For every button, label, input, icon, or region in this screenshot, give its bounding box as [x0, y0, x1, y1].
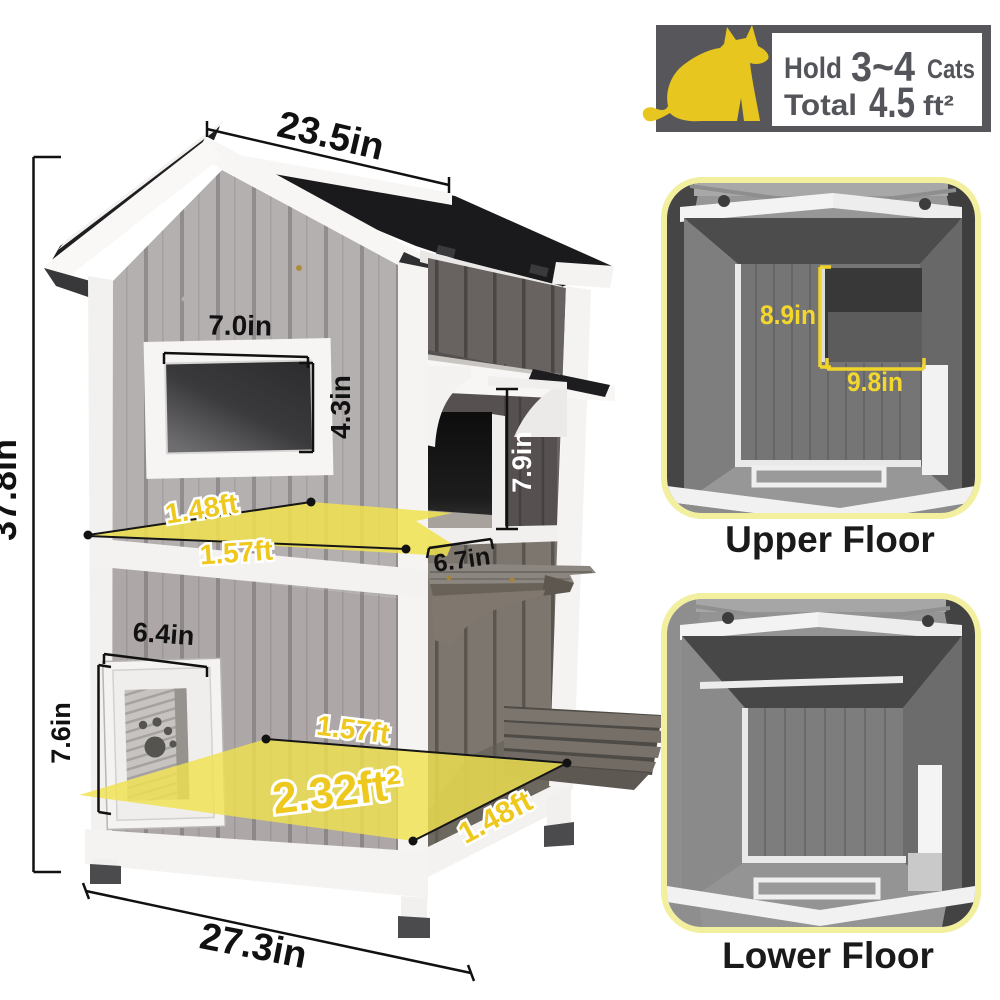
svg-text:7.0in: 7.0in	[208, 309, 272, 341]
svg-text:7.6in: 7.6in	[46, 702, 76, 764]
svg-text:8.9in: 8.9in	[760, 300, 816, 330]
svg-text:Lower Floor: Lower Floor	[722, 935, 934, 976]
svg-text:Upper Floor: Upper Floor	[725, 519, 935, 560]
svg-text:ft²: ft²	[923, 90, 954, 121]
svg-text:37.8in: 37.8in	[0, 439, 24, 541]
svg-text:4.3in: 4.3in	[325, 375, 356, 439]
svg-text:9.8in: 9.8in	[847, 367, 903, 397]
svg-text:4.5: 4.5	[869, 79, 915, 127]
svg-text:Cats: Cats	[927, 54, 975, 84]
svg-text:Total: Total	[784, 89, 857, 122]
svg-text:7.9in: 7.9in	[507, 431, 537, 493]
svg-text:1.57ft: 1.57ft	[199, 535, 274, 571]
svg-text:Hold: Hold	[784, 52, 842, 85]
svg-text:6.4in: 6.4in	[132, 617, 195, 651]
